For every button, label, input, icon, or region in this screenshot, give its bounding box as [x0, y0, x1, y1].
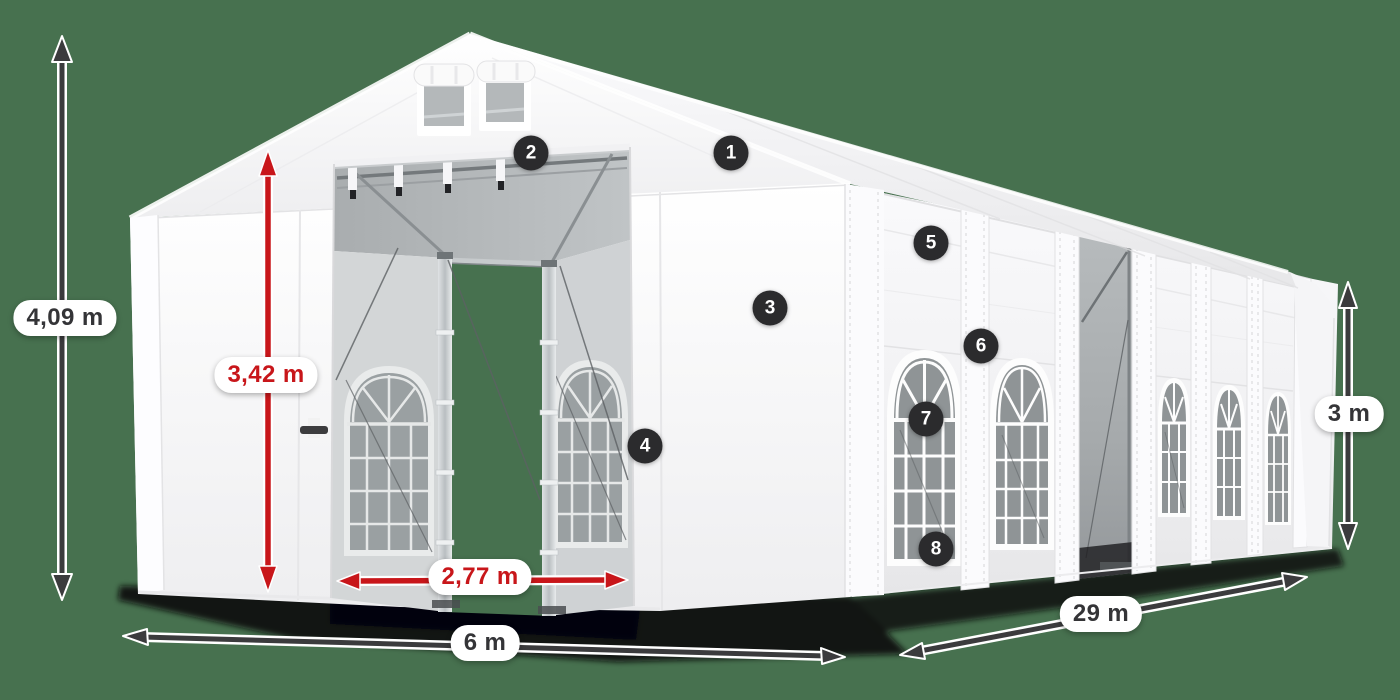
- side-window-5: [1265, 392, 1291, 525]
- interior-window-left: [344, 366, 434, 556]
- entrance-opening: [300, 147, 634, 616]
- dimension-label-side-height: 3 m: [1315, 396, 1384, 432]
- callout-badge-5: 5: [914, 226, 949, 261]
- callout-badge-2: 2: [514, 136, 549, 171]
- gable-vent-left: [414, 64, 474, 136]
- side-window-1: [887, 350, 962, 566]
- gable-vent-right: [477, 61, 535, 131]
- corner-post-band: [845, 184, 884, 597]
- callout-badge-8: 8: [919, 532, 954, 567]
- callout-badge-4: 4: [628, 429, 663, 464]
- tent-rendering: [0, 0, 1400, 700]
- dimension-label-total-height: 4,09 m: [13, 300, 116, 336]
- side-window-2: [990, 358, 1054, 550]
- side-door-opening: [1078, 229, 1133, 579]
- dimension-label-length: 29 m: [1060, 596, 1142, 632]
- product-illustration: 4,09 m 3,42 m 2,77 m 6 m 29 m 3 m 1 2 3 …: [0, 0, 1400, 700]
- dimension-label-width: 6 m: [451, 625, 520, 661]
- dimension-label-entrance-width: 2,77 m: [428, 559, 531, 595]
- side-window-3: [1158, 378, 1190, 517]
- interior-window-right: [552, 360, 628, 548]
- callout-badge-7: 7: [909, 402, 944, 437]
- callout-badge-1: 1: [714, 136, 749, 171]
- callout-badge-6: 6: [964, 329, 999, 364]
- dimension-label-entrance-height: 3,42 m: [214, 357, 317, 393]
- callout-badge-3: 3: [753, 291, 788, 326]
- side-window-4: [1213, 385, 1245, 520]
